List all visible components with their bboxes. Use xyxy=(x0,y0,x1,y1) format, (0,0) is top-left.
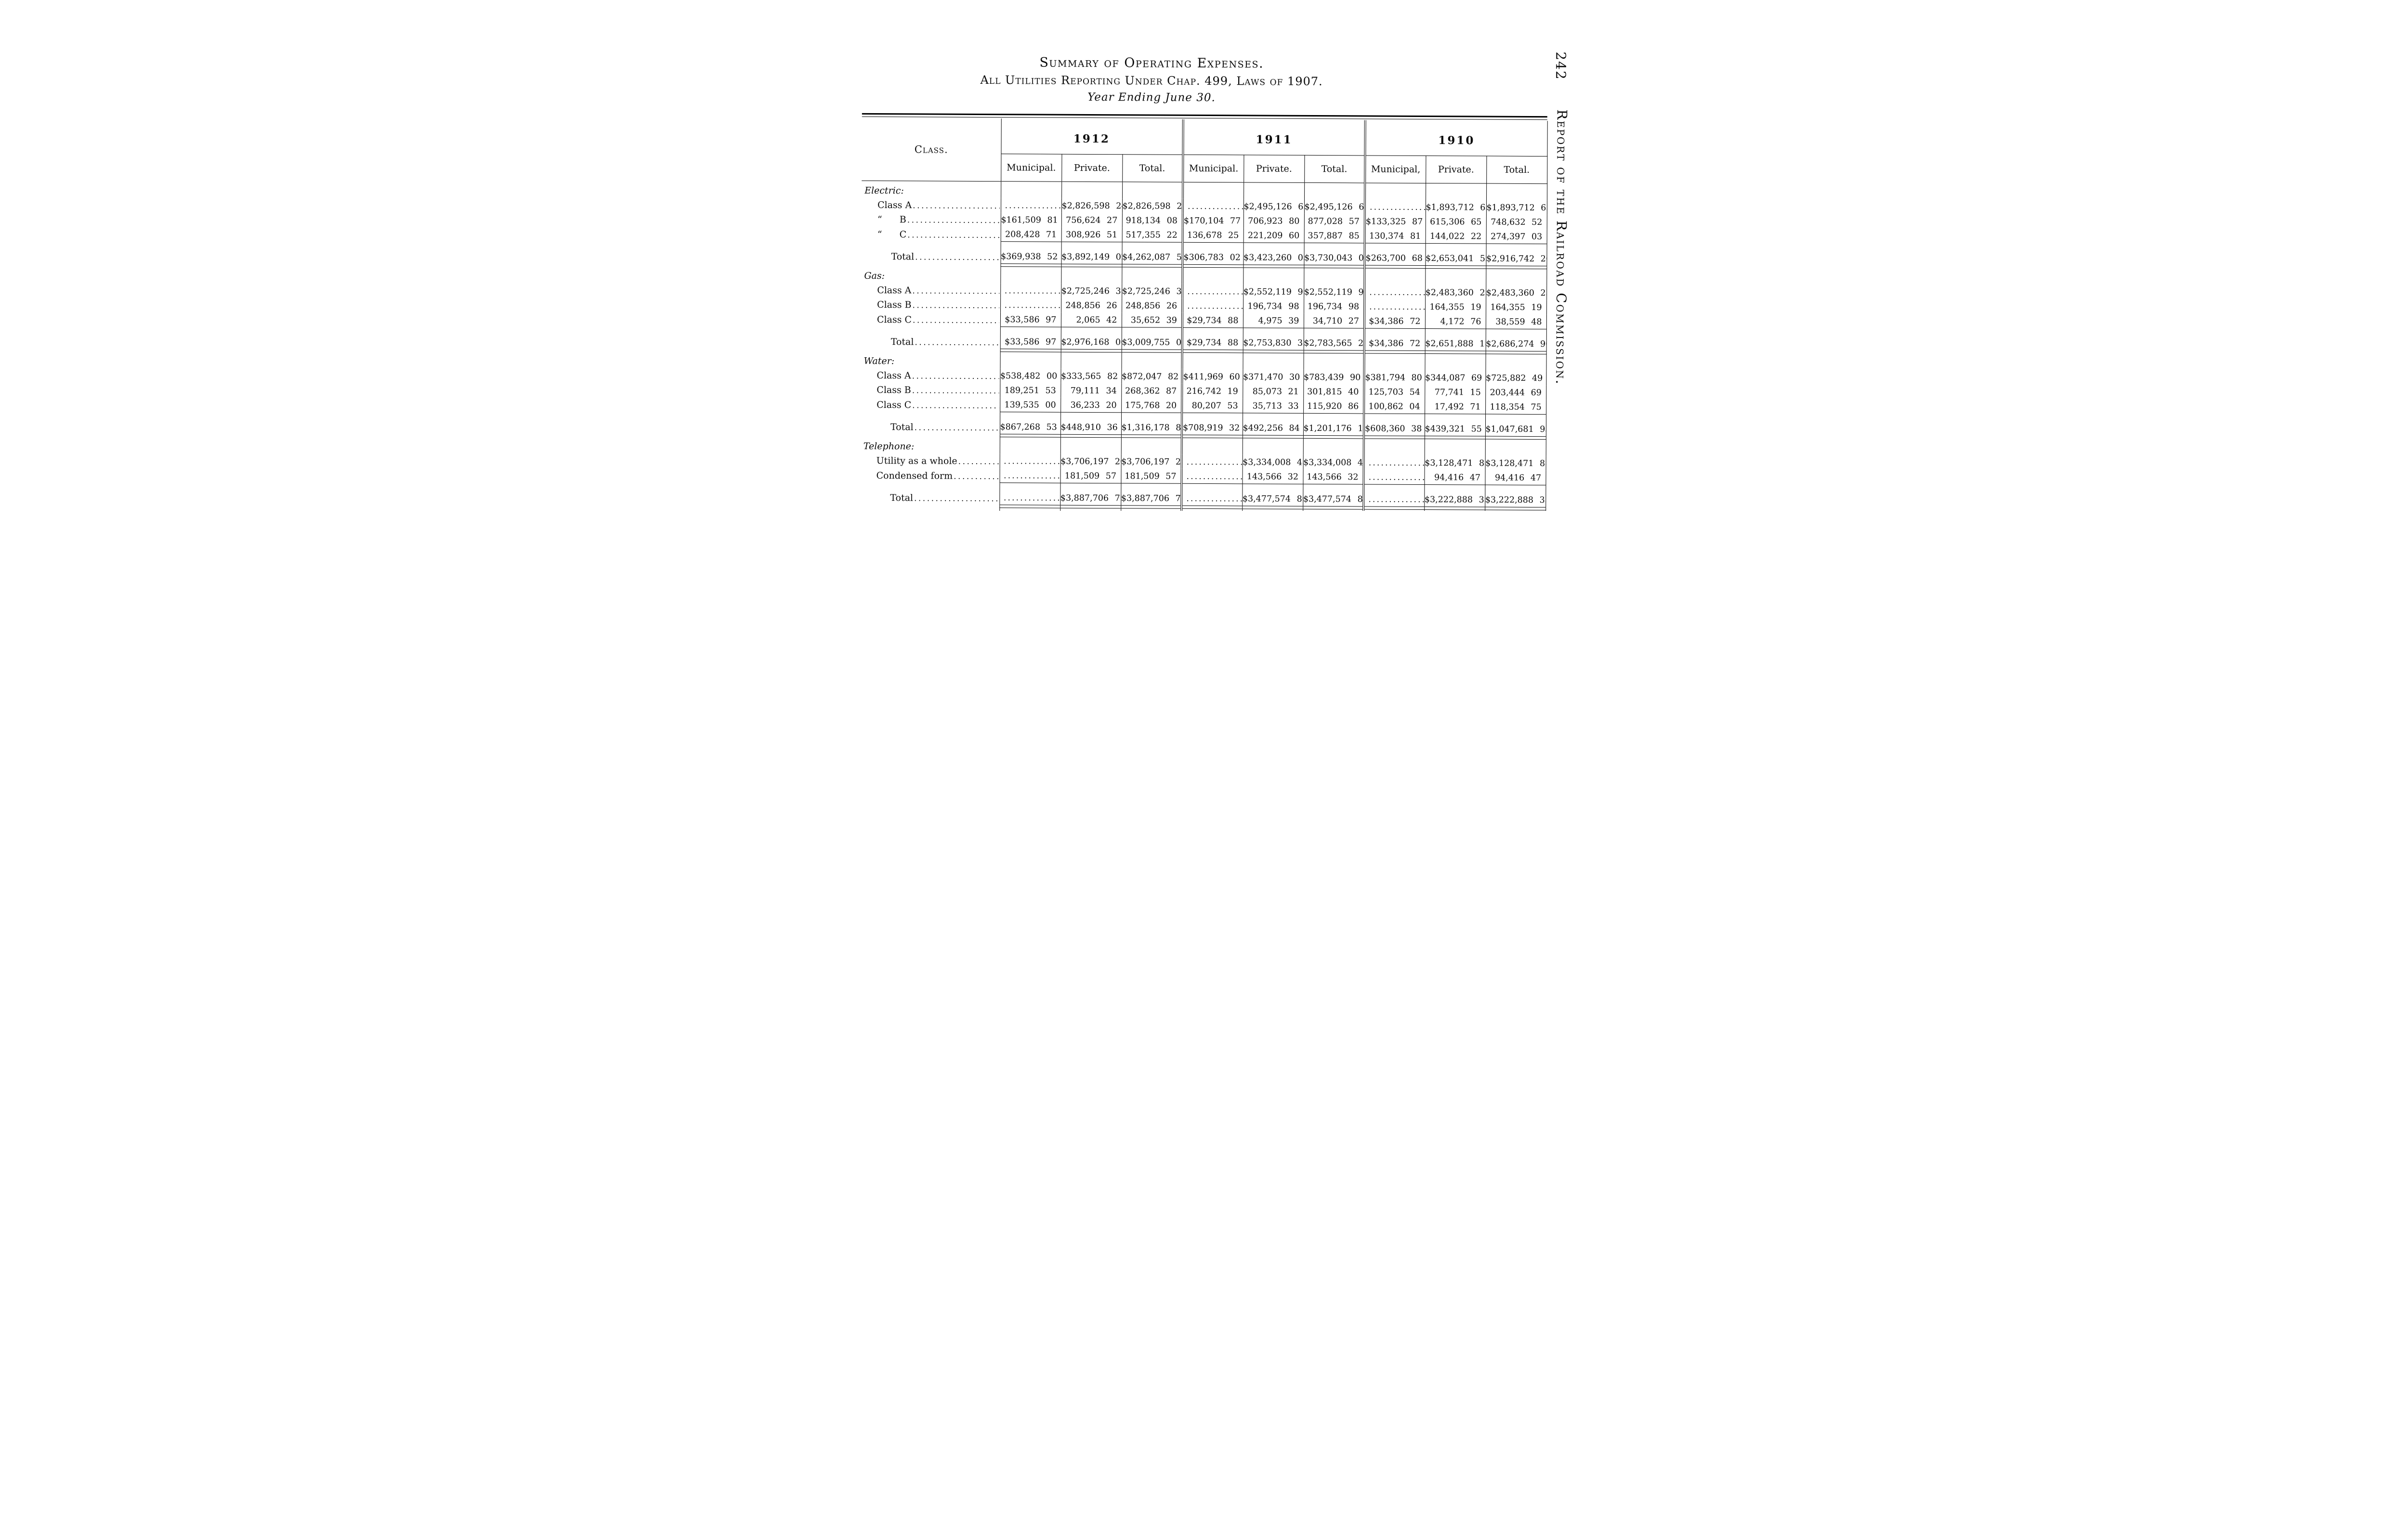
cell xyxy=(1486,269,1546,286)
row-label: Total xyxy=(861,326,1000,349)
cell xyxy=(1182,267,1243,284)
cell: 248,856 26 xyxy=(1061,298,1122,313)
cell: 308,926 51 xyxy=(1061,227,1122,242)
cell: $2,653,041 52 xyxy=(1426,244,1486,266)
dot-leader xyxy=(912,370,999,381)
cell: .............. xyxy=(1182,469,1243,484)
cell: $3,128,471 88 xyxy=(1425,455,1485,470)
table-row: Total$867,268 53$448,910 36$1,316,178 89… xyxy=(861,411,1546,436)
table-row: Total$369,938 52$3,892,149 02$4,262,087 … xyxy=(861,241,1546,266)
cell: .............. xyxy=(1001,198,1061,213)
cell: $3,477,574 80 xyxy=(1242,484,1303,507)
row-label: Class C xyxy=(861,397,1000,412)
row-label-text: Utility as a whole xyxy=(877,455,957,467)
cell xyxy=(1061,352,1122,369)
cell: $2,686,274 90 xyxy=(1486,329,1546,351)
dot-leader xyxy=(915,422,999,433)
row-label-text: Total xyxy=(891,251,914,262)
cell: 756,624 27 xyxy=(1061,213,1122,228)
cell: 248,856 26 xyxy=(1122,298,1182,313)
row-label-text: Class C xyxy=(877,400,911,410)
cell: 4,172 76 xyxy=(1425,314,1486,329)
cell: $2,826,598 24 xyxy=(1061,198,1122,213)
row-label-text: “ C xyxy=(877,229,907,240)
cell: .............. xyxy=(999,483,1060,506)
cell: 216,742 19 xyxy=(1182,384,1243,399)
cell: $3,706,197 20 xyxy=(1121,454,1182,469)
cell: 918,134 08 xyxy=(1122,213,1183,228)
cell: $263,700 68 xyxy=(1365,243,1426,266)
dot-leader xyxy=(912,285,999,296)
cell: $3,887,706 77 xyxy=(1060,483,1121,506)
page-sheet: Summary of Operating Expenses. All Utili… xyxy=(797,0,1611,511)
cell xyxy=(1061,267,1122,284)
row-label: Gas: xyxy=(861,266,1000,283)
cell: $3,887,706 77 xyxy=(1121,483,1181,506)
table-row: Total..............$3,887,706 77$3,887,7… xyxy=(860,482,1545,507)
column-header-private-1912: Private. xyxy=(1061,154,1122,182)
cell: 748,632 52 xyxy=(1486,215,1547,230)
cell xyxy=(1304,268,1364,285)
cell: 2,065 42 xyxy=(1061,312,1122,327)
cell xyxy=(1364,353,1425,370)
cell xyxy=(1182,438,1243,455)
cell: $3,477,574 80 xyxy=(1303,484,1363,507)
cell: .............. xyxy=(1182,455,1243,469)
cell: 77,741 15 xyxy=(1425,385,1485,400)
cell: $133,325 87 xyxy=(1365,214,1426,229)
cell: $3,334,008 48 xyxy=(1303,455,1364,470)
cell xyxy=(1182,352,1243,369)
cell: $573 56 xyxy=(1363,509,1424,511)
cell: $492,256 84 xyxy=(1243,413,1303,436)
cell xyxy=(1486,183,1547,200)
cell: .............. xyxy=(1182,299,1243,313)
cell: 706,923 80 xyxy=(1243,213,1304,228)
cell: .............. xyxy=(1364,469,1425,484)
column-header-municipal-1912: Municipal. xyxy=(1001,154,1061,182)
cell: $3,128,471 88 xyxy=(1485,456,1546,471)
cell: 268,362 87 xyxy=(1121,383,1182,398)
cell: $872,047 82 xyxy=(1121,369,1182,384)
page-subtitle: All Utilities Reporting Under Chap. 499,… xyxy=(798,72,1505,89)
cell: $760 04 xyxy=(1181,508,1242,511)
year-header-1912: 1912 xyxy=(1001,118,1183,155)
row-label: Utility as a whole xyxy=(861,453,1000,468)
cell: $195,205 69 xyxy=(1303,509,1363,511)
cell: 35,713 33 xyxy=(1243,398,1303,413)
cell: $2,552,119 95 xyxy=(1243,284,1304,299)
row-label-text: Class A xyxy=(877,285,911,296)
row-label: Class A xyxy=(861,368,1000,383)
cell: .............. xyxy=(1182,284,1243,299)
cell: 4,975 39 xyxy=(1243,313,1304,328)
cell: $538,482 00 xyxy=(1000,368,1060,383)
row-label: Class C xyxy=(861,312,1000,327)
cell: $1,893,712 65 xyxy=(1426,200,1486,215)
cell: 517,355 22 xyxy=(1122,227,1183,242)
cell: .............. xyxy=(1364,455,1425,470)
cell: $194,445 65 xyxy=(1242,509,1303,511)
page-number: 242 xyxy=(1553,52,1569,80)
row-label: Water: xyxy=(861,351,1000,368)
cell: 164,355 19 xyxy=(1425,299,1486,314)
row-label-text: Class B xyxy=(877,385,911,395)
cell xyxy=(1304,353,1364,370)
cell: 36,233 20 xyxy=(1060,398,1121,413)
cell xyxy=(1122,352,1182,369)
cell: $29,734 88 xyxy=(1182,327,1243,350)
cell: $2,753,830 32 xyxy=(1243,328,1304,351)
row-label-italic: Gas: xyxy=(864,271,885,281)
cell: 139,535 00 xyxy=(1000,397,1060,412)
cell: $33,586 97 xyxy=(1000,327,1061,350)
column-header-private-1911: Private. xyxy=(1243,155,1304,183)
dot-leader xyxy=(907,214,1000,225)
row-label-text: Condensed form xyxy=(876,470,953,481)
row-label: “ C xyxy=(862,226,1001,242)
row-label: Class B xyxy=(861,382,1000,397)
row-label: Class B xyxy=(861,297,1000,312)
cell: $170,104 77 xyxy=(1183,213,1243,228)
row-label-text: “ B xyxy=(877,214,906,225)
row-label-text: Class A xyxy=(877,370,911,381)
cell: 143,566 32 xyxy=(1242,469,1303,484)
row-label: Class A xyxy=(862,197,1001,212)
cell xyxy=(1364,439,1425,455)
cell: $3,730,043 07 xyxy=(1304,243,1364,265)
cell: $867,268 53 xyxy=(1000,412,1060,435)
row-label: “ B xyxy=(862,212,1001,227)
cell: $268,674 94 xyxy=(1121,508,1181,511)
row-label: Total xyxy=(861,411,1000,434)
cell: $2,575 33 xyxy=(999,508,1060,511)
cell xyxy=(1243,182,1304,199)
cell xyxy=(1425,354,1486,371)
year-header-1910: 1910 xyxy=(1365,120,1547,156)
cell: 34,710 27 xyxy=(1304,313,1364,328)
cell: 38,559 48 xyxy=(1486,314,1546,329)
row-label-text: Total xyxy=(890,422,914,432)
cell xyxy=(1243,438,1303,455)
cell: 94,416 47 xyxy=(1485,470,1546,485)
cell xyxy=(1426,183,1486,200)
row-label: Class A xyxy=(861,283,1000,298)
cell xyxy=(1425,439,1485,456)
dot-leader xyxy=(954,470,998,481)
row-label-text: Class B xyxy=(877,299,912,310)
cell xyxy=(1060,437,1121,454)
cell: $381,794 80 xyxy=(1364,370,1425,385)
dot-leader xyxy=(915,337,999,348)
cell: .............. xyxy=(1000,283,1061,298)
cell: $3,892,149 02 xyxy=(1061,242,1122,264)
cell: 357,887 85 xyxy=(1304,228,1365,243)
cell: $2,826,598 24 xyxy=(1122,198,1183,213)
cell: 100,862 04 xyxy=(1364,399,1425,414)
cell: $2,783,565 20 xyxy=(1304,328,1364,351)
cell: $3,222,888 35 xyxy=(1424,485,1485,507)
cell: $3,334,008 48 xyxy=(1243,455,1303,469)
cell: $34,386 72 xyxy=(1364,328,1425,351)
row-label-text: Total xyxy=(890,493,913,503)
dot-leader xyxy=(914,493,998,504)
cell: 94,416 47 xyxy=(1425,470,1485,485)
cell: $306,783 02 xyxy=(1182,242,1243,265)
cell xyxy=(1303,438,1364,455)
cell xyxy=(1000,267,1061,284)
cell xyxy=(1243,353,1304,370)
column-header-private-1910: Private. xyxy=(1426,156,1486,184)
cell: $2,483,360 23 xyxy=(1486,286,1546,300)
cell xyxy=(1000,437,1060,454)
cell: 125,703 54 xyxy=(1364,384,1425,399)
cell: $29,734 88 xyxy=(1182,313,1243,328)
cell: 181,509 57 xyxy=(1121,468,1181,483)
row-label-italic: Water: xyxy=(864,356,895,366)
cell xyxy=(1425,269,1486,286)
table-body: Electric:Class A..............$2,826,598… xyxy=(860,181,1547,511)
cell: 118,354 75 xyxy=(1485,400,1546,415)
cell: 85,073 21 xyxy=(1243,384,1303,399)
cell: $708,919 32 xyxy=(1182,413,1243,435)
cell: 143,566 32 xyxy=(1303,469,1363,484)
cell: .............. xyxy=(1363,484,1424,507)
cell: $266,099 61 xyxy=(1060,508,1121,511)
cell xyxy=(1304,182,1365,199)
cell: 189,251 53 xyxy=(1000,383,1060,398)
cell: 274,397 03 xyxy=(1486,229,1547,244)
cell: $344,087 69 xyxy=(1425,370,1485,385)
cell: .............. xyxy=(999,468,1060,483)
cell: $2,916,742 20 xyxy=(1486,244,1547,266)
cell: 136,678 25 xyxy=(1183,228,1243,243)
cell: 144,022 22 xyxy=(1426,229,1486,244)
dot-leader xyxy=(915,251,999,262)
cell xyxy=(1122,182,1183,199)
cell: 203,444 69 xyxy=(1485,385,1546,400)
cell: $3,423,260 05 xyxy=(1243,243,1304,265)
cell: $2,495,126 65 xyxy=(1304,199,1365,214)
cell xyxy=(1001,182,1061,198)
column-header-municipal-1911: Municipal. xyxy=(1183,155,1243,182)
row-label-text: Class C xyxy=(877,314,912,325)
cell: $3,706,197 20 xyxy=(1060,454,1121,469)
cell: $1,047,681 93 xyxy=(1485,414,1546,437)
cell: $333,565 82 xyxy=(1060,369,1121,384)
column-header-total-1912: Total. xyxy=(1122,155,1183,182)
cell: 175,768 20 xyxy=(1121,398,1182,413)
cell: $2,725,246 38 xyxy=(1061,284,1122,299)
cell: 877,028 57 xyxy=(1304,214,1365,229)
cell: $33,586 97 xyxy=(1000,312,1061,327)
cell: $608,360 38 xyxy=(1364,414,1425,436)
cell xyxy=(1243,268,1304,285)
year-header-1911: 1911 xyxy=(1183,119,1365,156)
column-header-class: Class. xyxy=(862,118,1001,182)
cell: 79,111 34 xyxy=(1060,383,1121,398)
dot-leader xyxy=(958,456,999,467)
cell xyxy=(1365,183,1426,200)
table-row: Total$33,586 97$2,976,168 06$3,009,755 0… xyxy=(861,326,1546,351)
cell: $1,201,176 16 xyxy=(1303,413,1364,436)
row-label-text: Total xyxy=(891,337,914,347)
cell: .............. xyxy=(1181,483,1242,506)
cell xyxy=(1061,182,1122,198)
cell: $185,061 89 xyxy=(1424,510,1485,511)
page-title: Summary of Operating Expenses. xyxy=(798,54,1505,72)
column-header-total-1910: Total. xyxy=(1486,156,1547,184)
cell: $3,009,755 03 xyxy=(1122,327,1182,350)
margin-running-title: Report of the Railroad Commission. xyxy=(1553,109,1570,437)
cell: $161,509 81 xyxy=(1001,212,1061,227)
cell: $1,893,712 65 xyxy=(1486,200,1547,215)
cell xyxy=(1121,438,1182,455)
cell: .............. xyxy=(1000,298,1061,312)
cell: 196,734 98 xyxy=(1243,299,1304,313)
cell: $448,910 36 xyxy=(1060,412,1121,435)
cell: 130,374 81 xyxy=(1365,228,1426,243)
cell: .............. xyxy=(1000,454,1060,468)
cell: $725,882 49 xyxy=(1485,371,1546,386)
cell: $2,976,168 06 xyxy=(1061,327,1122,350)
row-label: Heating: Total xyxy=(860,507,999,511)
cell xyxy=(1122,267,1182,284)
cell: $185,635 45 xyxy=(1485,510,1545,511)
expenses-table: Class. 1912 1911 1910 Municipal. Private… xyxy=(860,118,1548,511)
cell: $439,321 55 xyxy=(1425,414,1485,437)
row-label: Total xyxy=(861,241,1000,263)
table-header: Class. 1912 1911 1910 Municipal. Private… xyxy=(862,118,1547,184)
cell xyxy=(1485,439,1546,456)
dot-leader xyxy=(913,200,999,211)
row-label: Electric: xyxy=(862,181,1001,198)
cell: .............. xyxy=(1364,285,1425,299)
title-block: Summary of Operating Expenses. All Utili… xyxy=(798,54,1505,105)
cell: 164,355 19 xyxy=(1486,300,1546,315)
row-label: Telephone: xyxy=(861,436,1000,454)
dot-leader xyxy=(912,400,999,411)
cell: 208,428 71 xyxy=(1001,227,1061,242)
page-subtitle-period: Year Ending June 30. xyxy=(798,90,1505,105)
cell: .............. xyxy=(1364,299,1425,314)
scanned-page: Summary of Operating Expenses. All Utili… xyxy=(797,0,1611,511)
cell: 17,492 71 xyxy=(1425,399,1485,414)
year-header-row: Class. 1912 1911 1910 xyxy=(862,118,1547,156)
cell xyxy=(1364,268,1425,285)
cell: $4,262,087 54 xyxy=(1122,242,1182,265)
dot-leader xyxy=(912,299,999,311)
row-label: Condensed form xyxy=(860,468,999,483)
column-header-total-1911: Total. xyxy=(1304,155,1365,183)
column-header-municipal-1910: Municipal, xyxy=(1365,156,1426,183)
cell: $411,969 60 xyxy=(1182,369,1243,384)
cell: .............. xyxy=(1365,199,1426,214)
dot-leader xyxy=(913,314,999,325)
cell: 615,306 65 xyxy=(1426,214,1486,229)
row-label-italic: Electric: xyxy=(864,185,904,196)
cell: 196,734 98 xyxy=(1304,299,1364,314)
cell: $371,470 30 xyxy=(1243,369,1303,384)
cell: 115,920 86 xyxy=(1303,399,1364,414)
cell: $2,651,888 18 xyxy=(1425,329,1486,351)
cell xyxy=(1183,182,1243,199)
cell: $3,222,888 35 xyxy=(1485,485,1545,507)
cell: 301,815 40 xyxy=(1303,384,1364,399)
cell: $2,495,126 65 xyxy=(1243,199,1304,214)
cell: 221,209 60 xyxy=(1243,228,1304,243)
cell: $2,483,360 23 xyxy=(1425,285,1486,300)
row-label-italic: Telephone: xyxy=(864,441,915,452)
cell: $1,316,178 89 xyxy=(1121,413,1182,435)
cell: 80,207 53 xyxy=(1182,398,1243,413)
dot-leader xyxy=(907,229,999,240)
cell: $783,439 90 xyxy=(1303,370,1364,385)
cell: 35,652 39 xyxy=(1122,312,1182,327)
cell xyxy=(1486,354,1546,371)
cell: 181,509 57 xyxy=(1060,468,1121,483)
cell: $369,938 52 xyxy=(1000,242,1061,264)
cell xyxy=(1000,352,1061,369)
row-label-text: Class A xyxy=(877,200,912,210)
cell: $2,725,246 38 xyxy=(1122,284,1182,299)
cell: .............. xyxy=(1183,199,1243,214)
cell: $34,386 72 xyxy=(1364,313,1425,328)
row-label: Total xyxy=(860,482,999,505)
cell: $2,552,119 95 xyxy=(1304,285,1364,299)
dot-leader xyxy=(912,385,999,396)
